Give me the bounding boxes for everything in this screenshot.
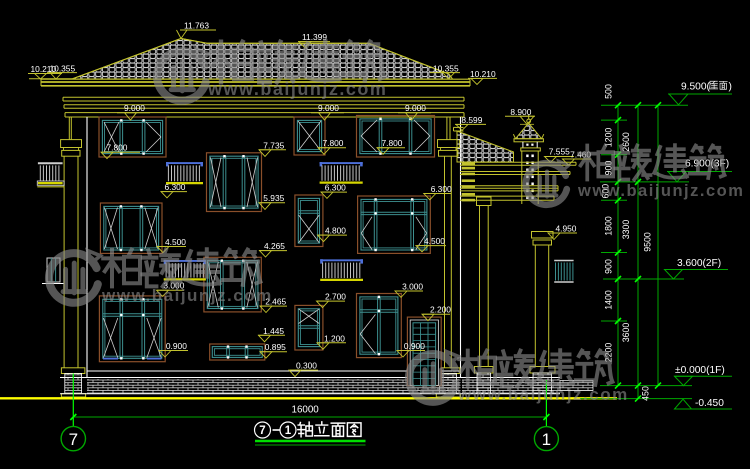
svg-text:0.300: 0.300 <box>296 361 317 371</box>
svg-text:900: 900 <box>604 259 614 274</box>
svg-text:7.555: 7.555 <box>549 147 570 157</box>
svg-text:16000: 16000 <box>292 405 320 416</box>
svg-text:8.900: 8.900 <box>510 107 531 117</box>
svg-text:9.000: 9.000 <box>124 103 145 113</box>
svg-text:3600: 3600 <box>621 323 631 343</box>
svg-text:3.000: 3.000 <box>402 282 423 292</box>
svg-text:www.baijunjz.com: www.baijunjz.com <box>101 286 273 305</box>
svg-text:2.200: 2.200 <box>430 305 451 315</box>
svg-text:www.baijunjz.com: www.baijunjz.com <box>457 385 629 404</box>
svg-text:500: 500 <box>604 84 614 99</box>
svg-text:9.000: 9.000 <box>318 103 339 113</box>
svg-text:4.950: 4.950 <box>556 224 577 234</box>
svg-text:): ) <box>729 82 732 93</box>
svg-text:2.700: 2.700 <box>325 292 346 302</box>
svg-text:4.500: 4.500 <box>424 236 445 246</box>
svg-text:8.599: 8.599 <box>461 115 482 125</box>
svg-text:0.900: 0.900 <box>166 341 187 351</box>
svg-text:7.800: 7.800 <box>323 138 344 148</box>
svg-text:9.500(: 9.500( <box>681 82 710 93</box>
svg-text:9500: 9500 <box>643 232 653 252</box>
svg-text:7.800: 7.800 <box>382 138 403 148</box>
svg-text:1800: 1800 <box>604 216 614 236</box>
svg-text:1400: 1400 <box>604 290 614 310</box>
svg-text:0.895: 0.895 <box>265 342 286 352</box>
svg-text:4.800: 4.800 <box>325 226 346 236</box>
svg-text:4.500: 4.500 <box>165 237 186 247</box>
svg-text:www.baijunjz.com: www.baijunjz.com <box>577 182 744 200</box>
svg-text:4.265: 4.265 <box>264 241 285 251</box>
svg-text:11.763: 11.763 <box>184 21 209 31</box>
svg-text:6.300: 6.300 <box>325 183 346 193</box>
svg-text:9.000: 9.000 <box>405 103 426 113</box>
svg-text:±0.000(1F): ±0.000(1F) <box>675 365 725 376</box>
svg-text:0.900: 0.900 <box>404 341 425 351</box>
svg-text:10.210: 10.210 <box>31 64 57 74</box>
svg-text:7.800: 7.800 <box>107 143 128 153</box>
svg-text:7.735: 7.735 <box>263 140 284 150</box>
svg-text:7: 7 <box>69 430 78 449</box>
svg-text:6.300: 6.300 <box>165 182 186 192</box>
svg-text:5.935: 5.935 <box>263 193 284 203</box>
svg-text:10.355: 10.355 <box>433 63 459 73</box>
svg-text:10.210: 10.210 <box>470 69 496 79</box>
svg-text:1: 1 <box>542 430 551 449</box>
svg-text:7: 7 <box>259 425 265 437</box>
svg-text:450: 450 <box>641 386 651 401</box>
svg-text:3.600(2F): 3.600(2F) <box>677 258 721 269</box>
svg-text:3300: 3300 <box>621 220 631 240</box>
svg-text:6.300: 6.300 <box>431 184 452 194</box>
svg-text:1.200: 1.200 <box>324 333 345 343</box>
svg-text:-0.450: -0.450 <box>695 398 724 409</box>
svg-text:1.445: 1.445 <box>263 326 284 336</box>
svg-text:1: 1 <box>285 425 292 437</box>
svg-text:www.baijunjz.com: www.baijunjz.com <box>207 79 387 99</box>
